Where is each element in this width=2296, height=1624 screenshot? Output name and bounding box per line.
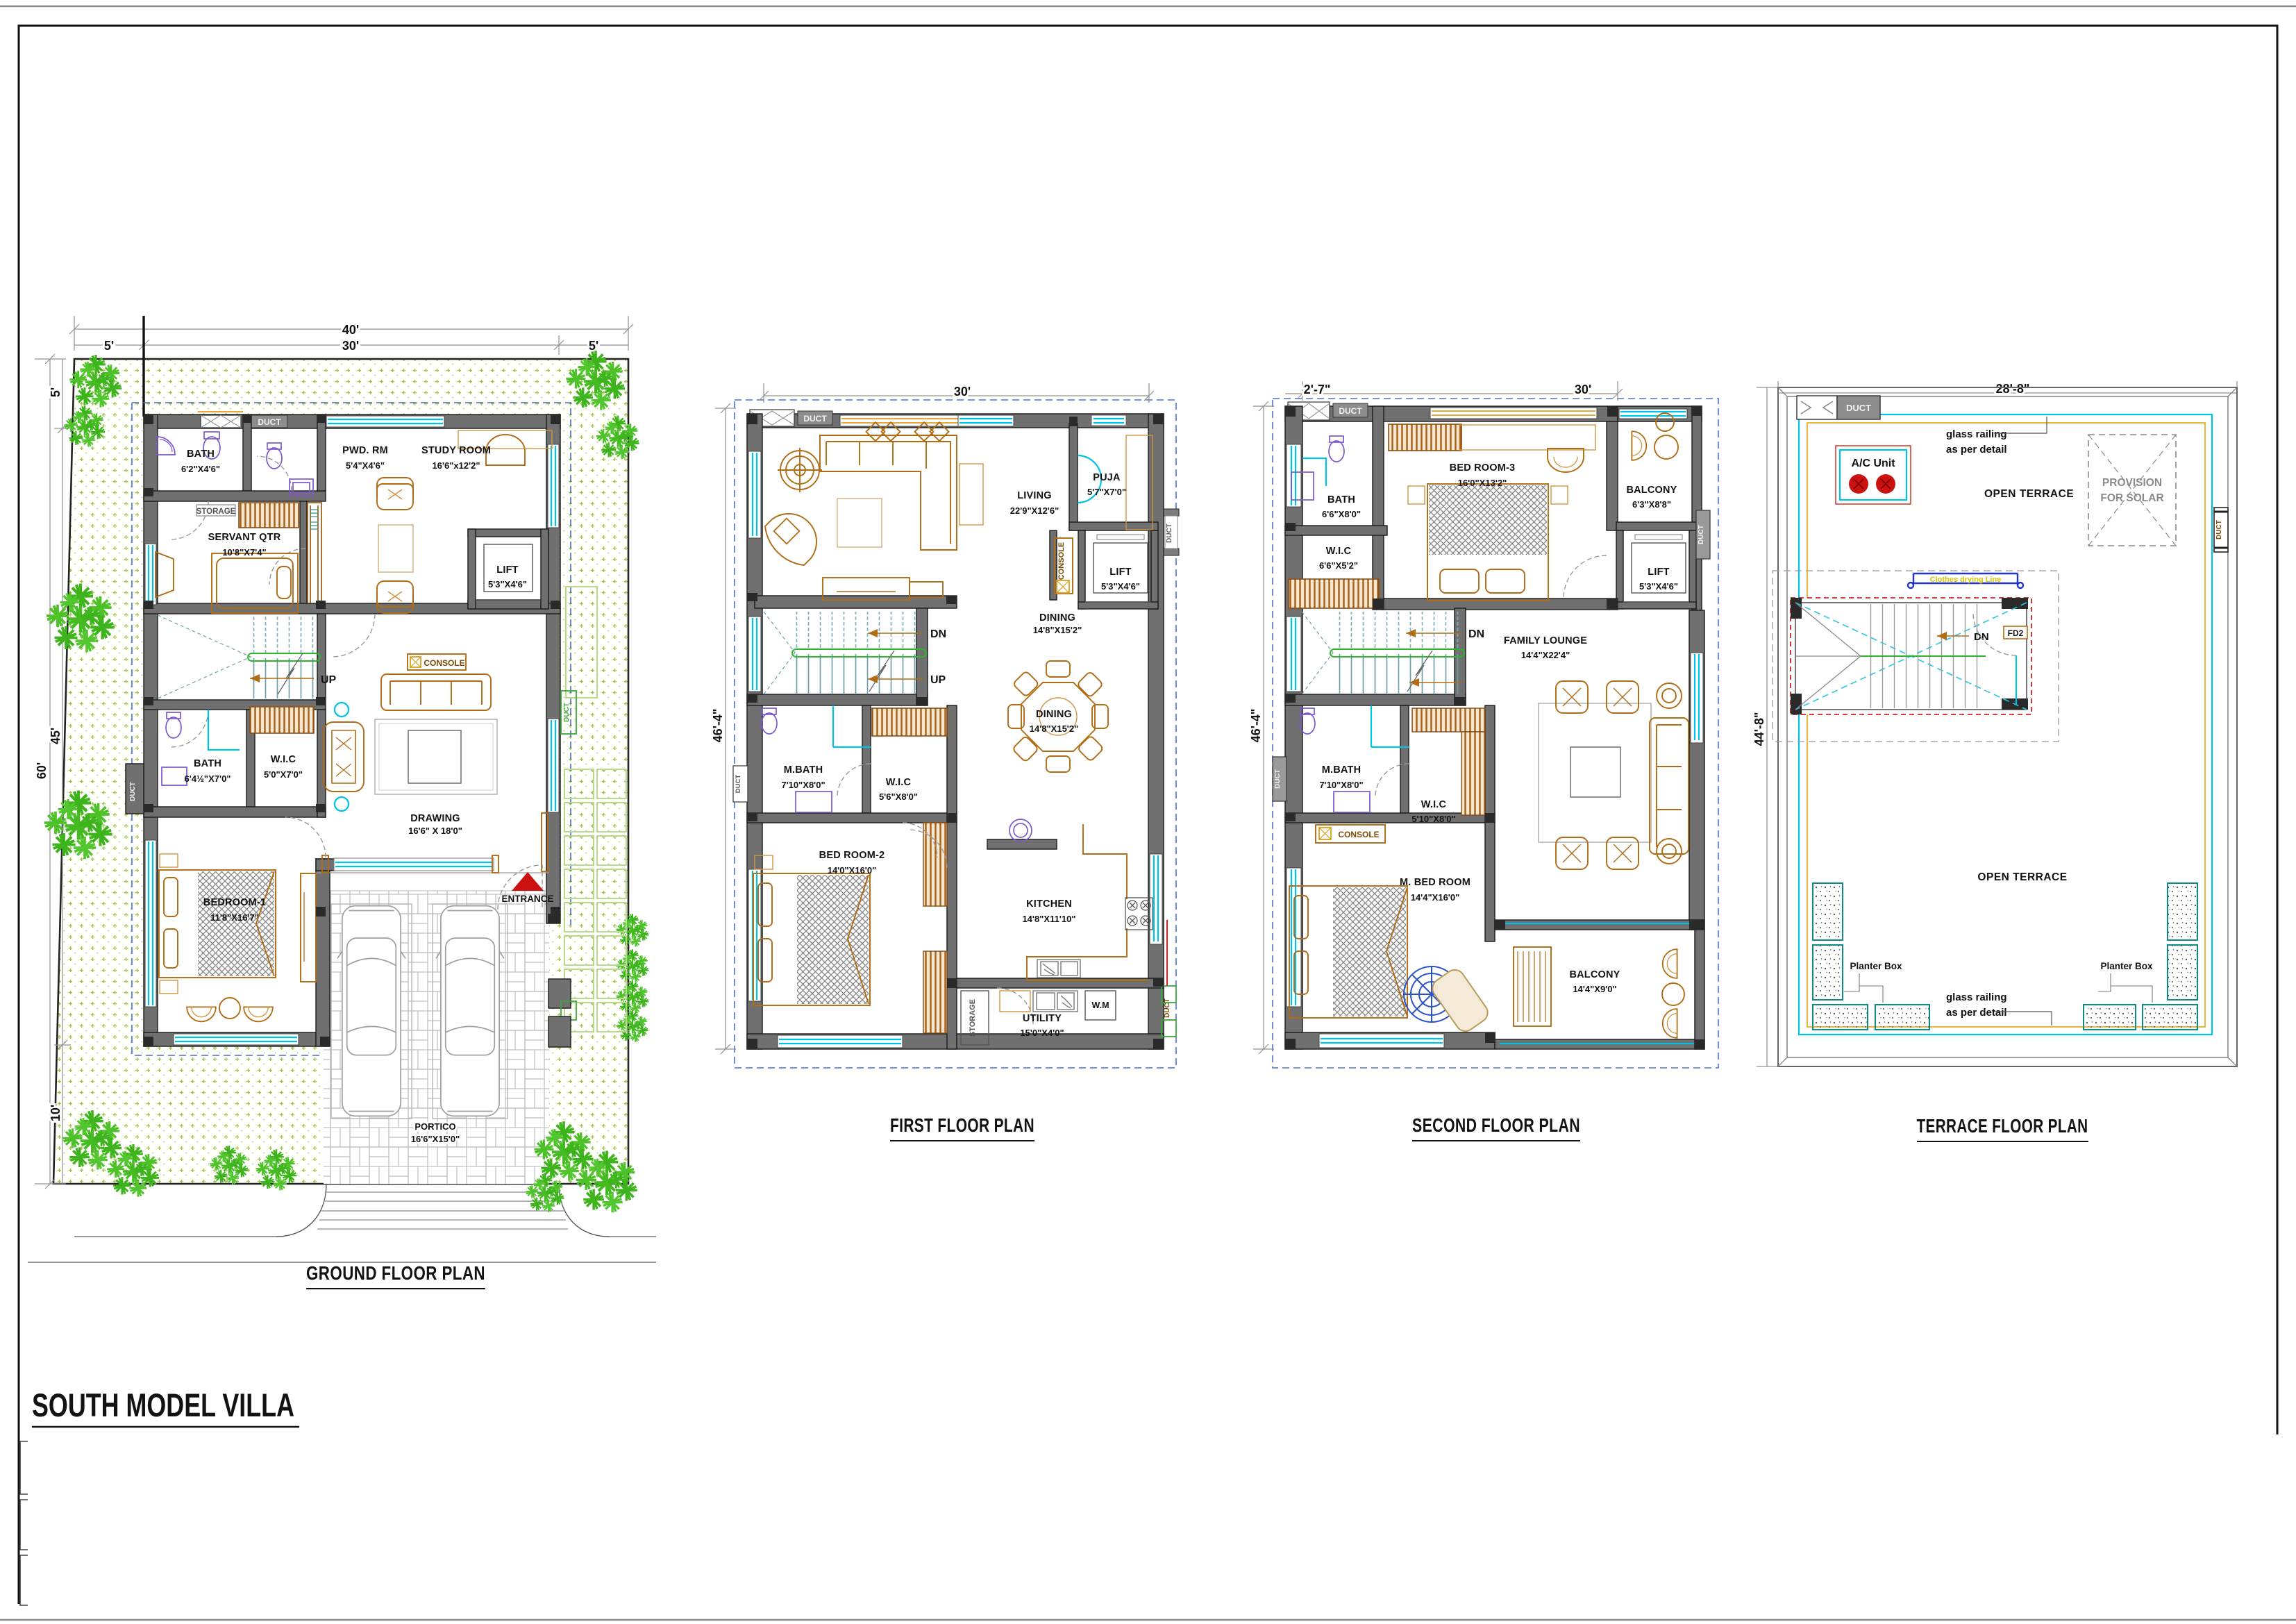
svg-text:W.I.C: W.I.C [886, 777, 912, 788]
svg-text:PROVISION: PROVISION [2102, 477, 2162, 489]
svg-text:glass railing: glass railing [1946, 428, 2007, 440]
svg-text:DUCT: DUCT [129, 782, 137, 801]
svg-text:DUCT: DUCT [1166, 524, 1173, 543]
svg-text:UP: UP [930, 674, 946, 686]
svg-text:Clothes drying Line: Clothes drying Line [1930, 576, 2002, 584]
svg-text:40': 40' [342, 323, 359, 337]
svg-text:10': 10' [49, 1105, 62, 1121]
svg-text:5'3"X4'6": 5'3"X4'6" [1639, 581, 1678, 592]
svg-text:6'6"X5'2": 6'6"X5'2" [1319, 560, 1358, 571]
svg-text:15'0"X4'0": 15'0"X4'0" [1020, 1028, 1064, 1038]
svg-text:DRAWING: DRAWING [410, 813, 460, 824]
svg-text:7'10"X8'0": 7'10"X8'0" [1319, 780, 1363, 790]
svg-text:14'0"X16'0": 14'0"X16'0" [828, 865, 877, 876]
svg-text:as per detail: as per detail [1946, 1007, 2007, 1019]
svg-text:14'8"X15'2": 14'8"X15'2" [1030, 723, 1079, 734]
svg-text:14'8"X11'10": 14'8"X11'10" [1022, 914, 1075, 924]
svg-text:30': 30' [342, 339, 359, 353]
svg-text:SOUTH MODEL VILLA: SOUTH MODEL VILLA [32, 1387, 294, 1423]
svg-text:22'9"X12'6": 22'9"X12'6" [1010, 505, 1059, 516]
svg-text:30': 30' [1575, 383, 1591, 396]
svg-text:5'7"X7'0": 5'7"X7'0" [1087, 487, 1126, 497]
svg-text:GROUND FLOOR PLAN: GROUND FLOOR PLAN [306, 1262, 485, 1284]
svg-text:W.I.C: W.I.C [1326, 546, 1352, 557]
svg-text:FAMILY LOUNGE: FAMILY LOUNGE [1504, 635, 1587, 646]
svg-text:6'4½"X7'0": 6'4½"X7'0" [185, 773, 231, 784]
svg-text:Planter Box: Planter Box [2100, 961, 2153, 971]
svg-text:W.I.C: W.I.C [1421, 799, 1447, 810]
svg-text:LIFT: LIFT [1648, 567, 1669, 578]
svg-text:KITCHEN: KITCHEN [1026, 898, 1072, 910]
svg-text:PORTICO: PORTICO [414, 1121, 455, 1132]
svg-text:STORAGE: STORAGE [969, 999, 977, 1037]
svg-text:BED ROOM-2: BED ROOM-2 [819, 850, 885, 861]
svg-text:28'-8": 28'-8" [1996, 382, 2030, 396]
svg-text:UTILITY: UTILITY [1023, 1013, 1062, 1024]
svg-text:10'8"X7'4": 10'8"X7'4" [222, 547, 266, 558]
svg-text:glass railing: glass railing [1946, 991, 2007, 1003]
svg-text:45': 45' [49, 728, 62, 744]
svg-text:LIFT: LIFT [1109, 567, 1131, 578]
svg-text:PUJA: PUJA [1093, 472, 1121, 483]
svg-text:6'6"X8'0": 6'6"X8'0" [1322, 509, 1361, 519]
svg-text:5'4"X4'6": 5'4"X4'6" [346, 460, 385, 471]
svg-text:DUCT: DUCT [1698, 525, 1705, 544]
svg-text:14'4"X9'0": 14'4"X9'0" [1573, 984, 1616, 994]
svg-text:LIVING: LIVING [1017, 490, 1052, 501]
svg-text:BEDROOM-1: BEDROOM-1 [203, 897, 266, 908]
svg-text:DUCT: DUCT [563, 703, 571, 722]
svg-text:as per detail: as per detail [1946, 444, 2007, 455]
svg-text:14'4"X16'0": 14'4"X16'0" [1411, 892, 1460, 903]
svg-text:BATH: BATH [1327, 494, 1355, 505]
svg-text:CONSOLE: CONSOLE [424, 658, 464, 668]
svg-text:W.I.C: W.I.C [271, 754, 296, 765]
svg-text:30': 30' [954, 385, 971, 399]
svg-text:OPEN TERRACE: OPEN TERRACE [1977, 871, 2067, 883]
svg-text:W.M: W.M [1092, 1001, 1109, 1010]
svg-text:BATH: BATH [194, 758, 221, 769]
svg-text:5': 5' [104, 339, 114, 353]
svg-text:DUCT: DUCT [735, 775, 742, 794]
svg-text:DINING: DINING [1039, 612, 1075, 623]
svg-text:FD2: FD2 [2008, 628, 2024, 638]
svg-text:BALCONY: BALCONY [1626, 485, 1677, 496]
svg-text:5': 5' [49, 387, 62, 397]
svg-text:DUCT: DUCT [258, 417, 281, 427]
svg-text:DUCT: DUCT [1846, 403, 1871, 413]
svg-text:CONSOLE: CONSOLE [1057, 542, 1066, 580]
svg-text:DUCT: DUCT [1339, 406, 1362, 416]
svg-text:5'10"X8'0": 5'10"X8'0" [1411, 814, 1455, 824]
svg-text:2'-7": 2'-7" [1304, 383, 1331, 396]
svg-text:6'3"X8'8": 6'3"X8'8" [1632, 499, 1671, 510]
svg-text:SECOND FLOOR PLAN: SECOND FLOOR PLAN [1412, 1114, 1580, 1136]
svg-text:STUDY ROOM: STUDY ROOM [421, 445, 491, 456]
svg-text:14'4"X22'4": 14'4"X22'4" [1521, 650, 1570, 660]
svg-text:DN: DN [1468, 628, 1484, 640]
svg-text:60': 60' [35, 762, 49, 779]
svg-text:ENTRANCE: ENTRANCE [501, 894, 553, 904]
svg-text:DN: DN [930, 628, 946, 640]
svg-text:CONSOLE: CONSOLE [1338, 830, 1379, 839]
svg-text:5'0"X7'0": 5'0"X7'0" [264, 769, 303, 780]
svg-text:14'8"X15'2": 14'8"X15'2" [1033, 625, 1082, 635]
svg-text:16'0"X13'2": 16'0"X13'2" [1458, 478, 1507, 488]
svg-text:STORAGE: STORAGE [196, 508, 236, 516]
svg-text:M. BED ROOM: M. BED ROOM [1400, 877, 1470, 888]
svg-text:5'3"X4'6": 5'3"X4'6" [1101, 581, 1140, 592]
svg-text:5': 5' [589, 339, 598, 353]
svg-text:TERRACE FLOOR PLAN: TERRACE FLOOR PLAN [1917, 1115, 2088, 1137]
svg-text:DINING: DINING [1036, 709, 1072, 720]
svg-text:OPEN TERRACE: OPEN TERRACE [1984, 488, 2074, 500]
svg-text:7'10"X8'0": 7'10"X8'0" [781, 780, 825, 790]
svg-text:6'2"X4'6": 6'2"X4'6" [181, 464, 220, 474]
svg-text:16'6"x12'2": 16'6"x12'2" [432, 460, 480, 471]
svg-text:SERVANT QTR: SERVANT QTR [208, 532, 281, 543]
svg-text:5'6"X8'0": 5'6"X8'0" [879, 792, 918, 802]
svg-text:BALCONY: BALCONY [1569, 969, 1620, 980]
svg-text:M.BATH: M.BATH [784, 764, 823, 776]
svg-text:11'8"X16'7": 11'8"X16'7" [210, 912, 259, 923]
svg-text:LIFT: LIFT [496, 564, 518, 576]
svg-text:46'-4": 46'-4" [1249, 709, 1263, 743]
svg-text:DUCT: DUCT [2215, 520, 2223, 539]
svg-text:DUCT: DUCT [1274, 769, 1282, 789]
svg-text:M.BATH: M.BATH [1322, 764, 1361, 776]
svg-text:16'6" X 18'0": 16'6" X 18'0" [408, 826, 462, 836]
svg-text:DUCT: DUCT [1164, 998, 1171, 1018]
svg-text:44'-8": 44'-8" [1752, 712, 1766, 746]
svg-text:PWD. RM: PWD. RM [342, 445, 388, 456]
svg-text:46'-4": 46'-4" [711, 709, 725, 743]
svg-text:BED ROOM-3: BED ROOM-3 [1450, 462, 1516, 474]
svg-text:UP: UP [321, 674, 337, 686]
svg-text:BATH: BATH [187, 449, 215, 460]
svg-text:FOR SOLAR: FOR SOLAR [2100, 492, 2163, 504]
svg-text:Planter Box: Planter Box [1850, 961, 1902, 971]
svg-text:5'3"X4'6": 5'3"X4'6" [488, 579, 527, 589]
svg-text:16'6"X15'0": 16'6"X15'0" [411, 1134, 460, 1144]
svg-text:DUCT: DUCT [803, 414, 827, 424]
svg-text:A/C Unit: A/C Unit [1851, 458, 1895, 469]
svg-text:FIRST FLOOR PLAN: FIRST FLOOR PLAN [890, 1114, 1034, 1136]
